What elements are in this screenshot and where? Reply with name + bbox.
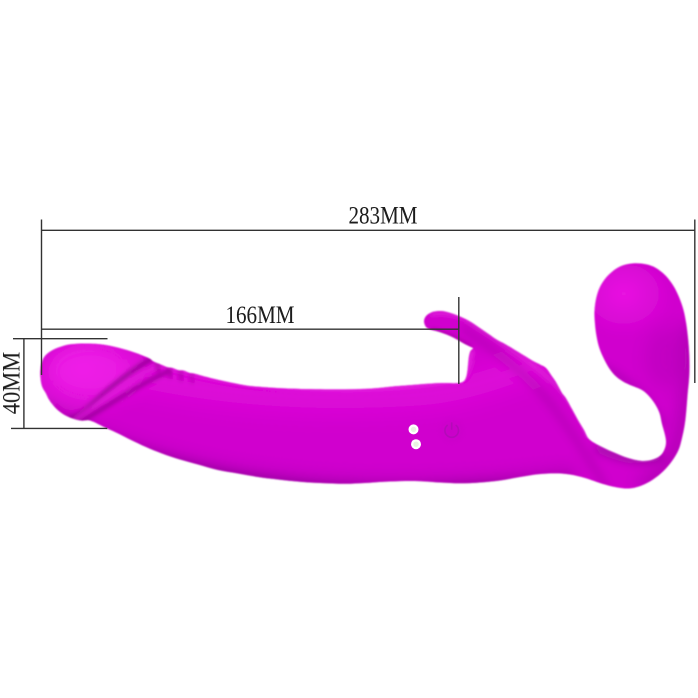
svg-text:40MM: 40MM xyxy=(0,352,26,414)
svg-text:283MM: 283MM xyxy=(348,202,417,230)
svg-text:166MM: 166MM xyxy=(225,301,294,329)
